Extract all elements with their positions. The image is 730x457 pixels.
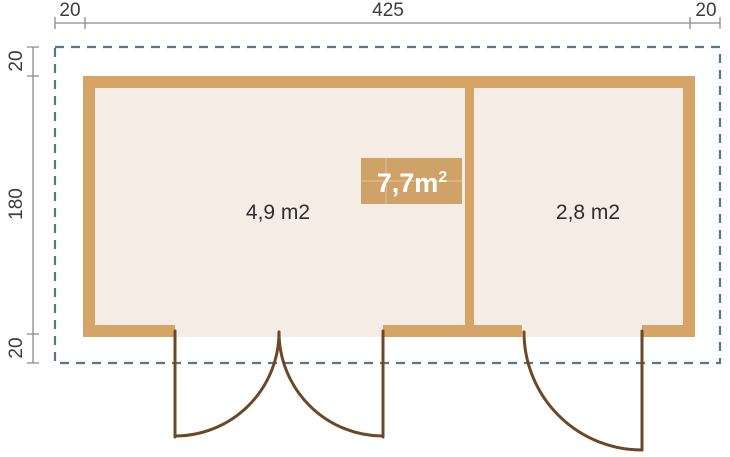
double-door	[175, 331, 383, 437]
single-door	[524, 331, 642, 450]
dim-left-depth: 180	[6, 188, 27, 220]
partition-wall	[465, 88, 474, 325]
double-door-right-swing-arc	[279, 332, 383, 436]
room-label-right: 2,8 m2	[556, 201, 620, 224]
dimension-line-top: 20 425 20	[55, 0, 720, 29]
dimension-line-left-strokes	[27, 47, 39, 363]
dim-top-right-overhang: 20	[695, 0, 716, 21]
dim-top-left-overhang: 20	[59, 0, 80, 21]
dim-left-bottom-overhang: 20	[6, 337, 27, 358]
double-door-left-swing-arc	[175, 332, 279, 436]
single-door-swing-arc	[524, 332, 642, 450]
floor-plan: 7,7m2 4,9 m2 2,8 m2 20 425 20 20 180	[0, 0, 730, 457]
floor-plan-svg: 7,7m2 4,9 m2 2,8 m2 20 425 20 20 180	[0, 0, 730, 457]
dim-left-top-overhang: 20	[6, 50, 27, 71]
single-door-opening	[522, 325, 642, 337]
dim-top-width: 425	[372, 0, 404, 21]
total-area-badge: 7,7m2	[361, 158, 462, 204]
total-area-label: 7,7m2	[377, 168, 448, 198]
room-label-left: 4,9 m2	[246, 201, 310, 224]
dimension-line-left: 20 180 20	[6, 47, 39, 363]
